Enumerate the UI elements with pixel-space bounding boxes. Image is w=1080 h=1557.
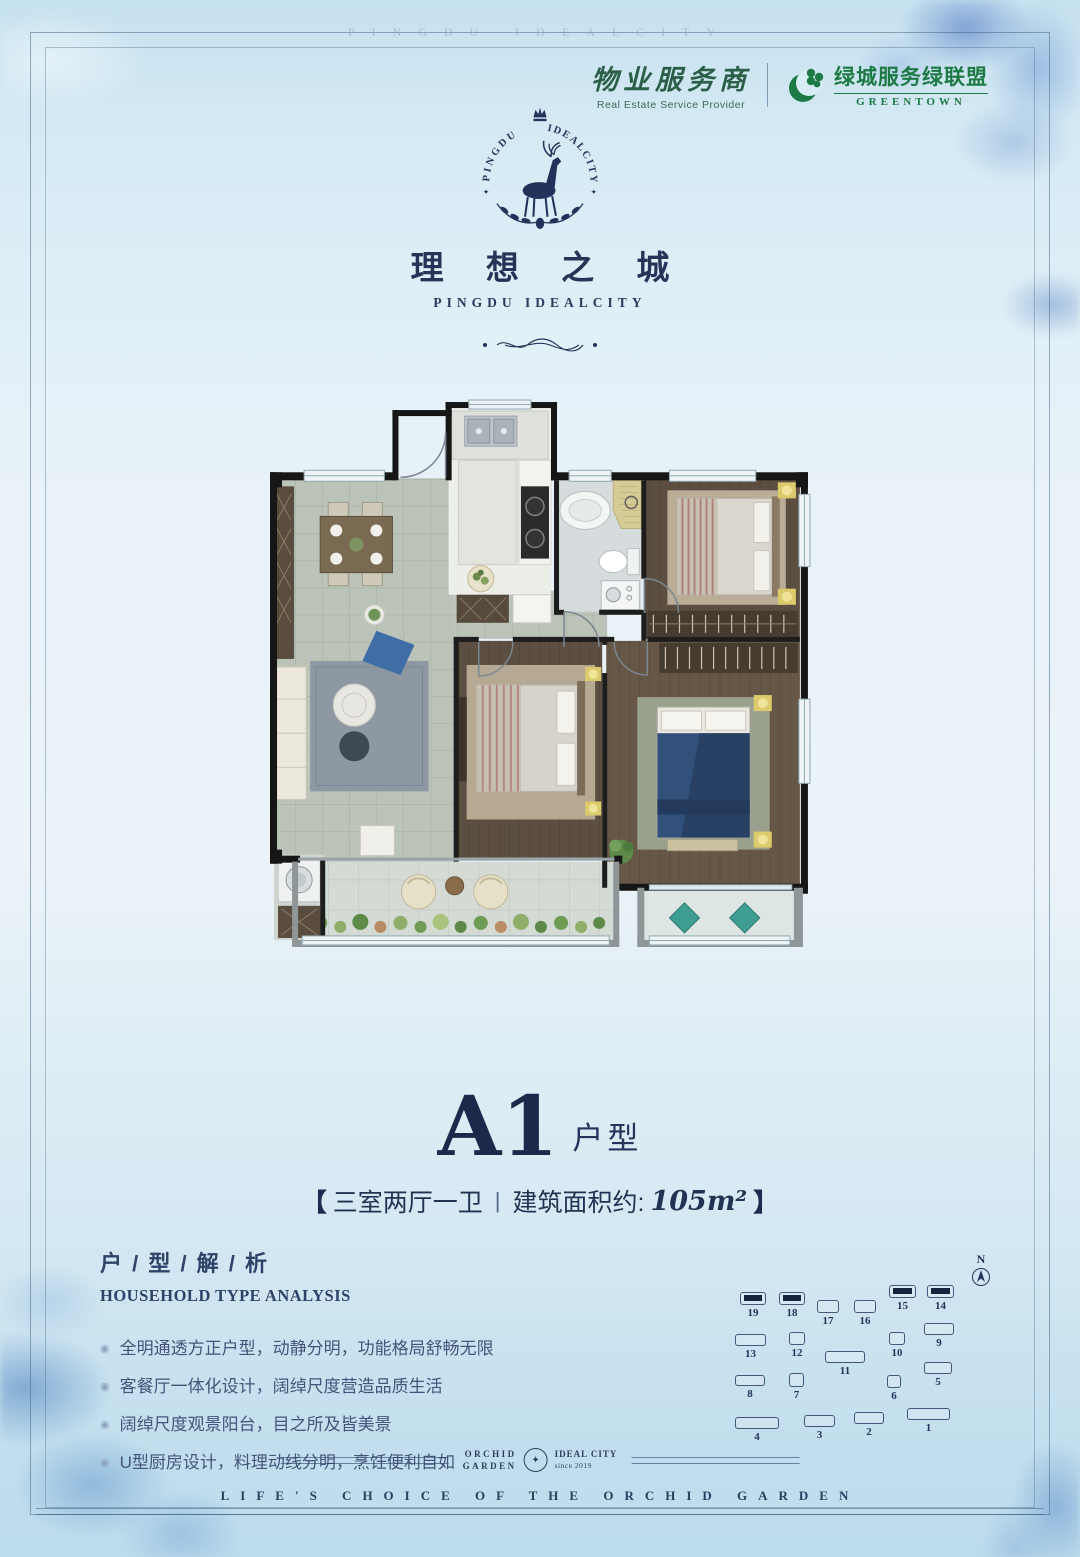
building-13	[735, 1334, 766, 1346]
deer-emblem: PINGDU IDEALCITY ✦ ✦	[465, 104, 615, 232]
footer-badge: ORCHID GARDEN ✦ IDEAL CITY since 2019	[463, 1448, 618, 1472]
unit-title: A1 户型	[438, 1086, 643, 1168]
unit-suffix: 户型	[572, 1113, 642, 1168]
bullet-text: 客餐厅一体化设计，阔绰尺度营造品质生活	[120, 1368, 443, 1406]
spec-bracket-right: 】	[753, 1183, 778, 1219]
svg-text:PINGDU: PINGDU	[481, 128, 520, 182]
bullet-dot-icon: ◉	[100, 1368, 110, 1406]
building-6	[887, 1375, 901, 1388]
bullet-text: 全明通透方正户型，动静分明，功能格局舒畅无限	[120, 1330, 494, 1368]
building-10	[889, 1332, 905, 1345]
building-highlight	[931, 1288, 950, 1294]
building-label-12: 12	[785, 1347, 809, 1359]
spec-bracket-left: 【	[302, 1183, 327, 1219]
footer-badge-row: ORCHID GARDEN ✦ IDEAL CITY since 2019	[281, 1448, 800, 1472]
building-label-18: 18	[775, 1307, 809, 1319]
building-1	[907, 1408, 950, 1420]
spec-rooms: 三室两厅一卫	[333, 1183, 483, 1219]
building-9	[924, 1323, 954, 1335]
building-7	[789, 1373, 804, 1387]
room-master-bay	[644, 888, 800, 940]
bullet-dot-icon: ◉	[100, 1330, 110, 1368]
analysis-section: 户 / 型 / 解 / 析 HOUSEHOLD TYPE ANALYSIS ◉全…	[100, 1246, 580, 1482]
building-label-8: 8	[731, 1388, 769, 1400]
footer-rule-2	[36, 1514, 1044, 1515]
footer-rule-1	[36, 1508, 1044, 1509]
building-label-13: 13	[731, 1348, 770, 1360]
bullet-dot-icon: ◉	[100, 1444, 110, 1482]
star-right: ✦	[591, 187, 598, 196]
badge-emblem-icon: ✦	[524, 1448, 548, 1472]
greentown-crescent-clover-icon	[784, 64, 826, 106]
floor-plan	[268, 398, 830, 955]
building-18	[779, 1292, 805, 1305]
building-4	[735, 1417, 779, 1429]
petal-decoration-right	[940, 240, 1080, 370]
brand-block: PINGDU IDEALCITY ✦ ✦	[330, 104, 750, 358]
badge-ideal-city: IDEAL CITY since 2019	[555, 1449, 618, 1470]
spec-separator: |	[489, 1188, 507, 1214]
north-label: N	[971, 1252, 991, 1267]
building-highlight	[893, 1288, 912, 1294]
flourish-divider	[330, 337, 750, 358]
unit-spec: 【 三室两厅一卫 | 建筑面积约: 105m² 】	[302, 1183, 778, 1219]
spec-area-label: 建筑面积约:	[513, 1183, 645, 1219]
building-8	[735, 1375, 765, 1386]
building-14	[927, 1285, 954, 1298]
bullet-text: 阔绰尺度观景阳台，目之所及皆美景	[120, 1406, 392, 1444]
building-label-1: 1	[903, 1422, 954, 1434]
bullet-dot-icon: ◉	[100, 1406, 110, 1444]
furniture-bedroom-1	[459, 665, 602, 820]
building-label-6: 6	[883, 1390, 905, 1402]
building-label-5: 5	[920, 1376, 956, 1388]
building-2	[854, 1412, 884, 1424]
building-label-19: 19	[736, 1307, 770, 1319]
laurel-leaves	[497, 204, 583, 229]
building-16	[854, 1300, 876, 1313]
furniture-utility	[278, 858, 320, 938]
entry-door	[400, 432, 445, 477]
building-label-10: 10	[885, 1347, 909, 1359]
badge-lines-right	[631, 1457, 799, 1464]
building-5	[924, 1362, 952, 1374]
building-label-15: 15	[885, 1300, 920, 1312]
analysis-bullet-2: ◉客餐厅一体化设计，阔绰尺度营造品质生活	[100, 1368, 580, 1406]
spec-area-value: 105m²	[650, 1186, 747, 1217]
building-label-16: 16	[850, 1315, 880, 1327]
badge-lines-left	[281, 1457, 449, 1464]
provider-cn-label: 物业服务商	[591, 58, 751, 97]
furniture-bedroom-2	[647, 482, 798, 637]
building-label-7: 7	[785, 1389, 808, 1401]
building-15	[889, 1285, 916, 1298]
analysis-title-cn: 户 / 型 / 解 / 析	[100, 1246, 580, 1278]
building-label-9: 9	[920, 1337, 958, 1349]
greentown-cn-label: 绿城服务绿联盟	[834, 61, 988, 91]
building-label-14: 14	[923, 1300, 958, 1312]
building-17	[817, 1300, 839, 1313]
greentown-text: 绿城服务绿联盟 GREENTOWN	[834, 61, 988, 108]
building-label-11: 11	[821, 1365, 869, 1377]
building-label-3: 3	[800, 1429, 839, 1441]
building-label-2: 2	[850, 1426, 888, 1438]
north-indicator: N	[971, 1252, 991, 1292]
building-11	[825, 1351, 865, 1363]
footer-tagline: LIFE'S CHOICE OF THE ORCHID GARDEN	[221, 1488, 860, 1504]
analysis-bullet-1: ◉全明通透方正户型，动静分明，功能格局舒畅无限	[100, 1330, 580, 1368]
building-highlight	[744, 1295, 762, 1301]
badge-orchid-garden: ORCHID GARDEN	[463, 1448, 517, 1472]
balcony-slider	[298, 858, 614, 861]
star-left: ✦	[483, 187, 490, 196]
building-19	[740, 1292, 766, 1305]
brand-name-cn: 理 想 之 城	[330, 241, 750, 289]
site-plan: N 19181716151413121110987654321	[712, 1252, 997, 1452]
greentown-logo-block: 绿城服务绿联盟 GREENTOWN	[784, 61, 988, 108]
analysis-title-en: HOUSEHOLD TYPE ANALYSIS	[100, 1286, 580, 1306]
building-label-4: 4	[731, 1431, 783, 1443]
building-label-17: 17	[813, 1315, 843, 1327]
greentown-en-label: GREENTOWN	[834, 93, 988, 108]
cloud-decoration-top-left	[0, 0, 260, 200]
deer-silhouette	[523, 141, 561, 217]
building-12	[789, 1332, 805, 1345]
analysis-bullet-3: ◉阔绰尺度观景阳台，目之所及皆美景	[100, 1406, 580, 1444]
crown-icon	[533, 108, 546, 122]
poster: { "watermark": "PINGDU IDEALCITY", "colo…	[0, 0, 1080, 1557]
north-arrow-icon	[971, 1267, 991, 1287]
brand-name-en: PINGDU IDEALCITY	[330, 295, 750, 311]
header-divider	[767, 63, 768, 107]
building-3	[804, 1415, 835, 1427]
flower-decoration-top-right	[780, 0, 1080, 230]
top-watermark: PINGDU IDEALCITY	[348, 25, 732, 40]
building-highlight	[783, 1295, 801, 1301]
unit-code: A1	[438, 1086, 559, 1168]
